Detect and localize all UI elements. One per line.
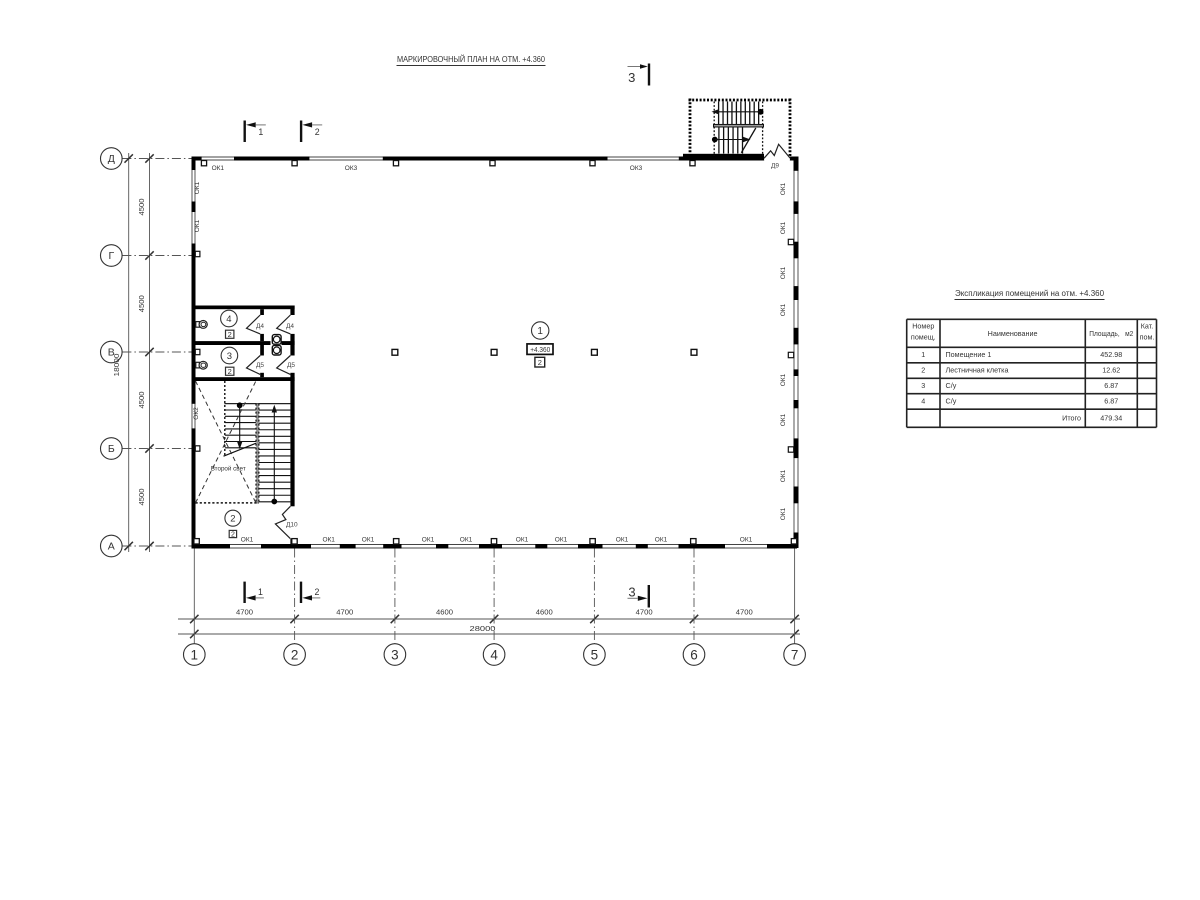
svg-text:ОК1: ОК1 [655, 537, 668, 544]
svg-text:ОК1: ОК1 [780, 303, 787, 316]
svg-text:4700: 4700 [736, 608, 753, 617]
svg-text:Второй свет: Второй свет [211, 464, 246, 472]
svg-text:6: 6 [690, 647, 698, 662]
svg-text:4: 4 [226, 314, 231, 325]
svg-text:ОК1: ОК1 [460, 537, 473, 544]
svg-text:2: 2 [538, 358, 542, 367]
svg-text:помещ.: помещ. [911, 333, 936, 342]
svg-text:ОК1: ОК1 [322, 537, 335, 544]
svg-text:Д: Д [108, 153, 115, 165]
svg-text:ОК1: ОК1 [780, 373, 787, 386]
svg-text:4: 4 [490, 647, 498, 662]
svg-text:452.98: 452.98 [1100, 350, 1122, 359]
svg-text:Д10: Д10 [286, 522, 298, 529]
svg-text:ОК1: ОК1 [780, 221, 787, 234]
svg-text:2: 2 [231, 532, 235, 539]
svg-text:ОК1: ОК1 [194, 181, 201, 194]
svg-text:2: 2 [315, 127, 320, 137]
svg-text:1: 1 [191, 647, 199, 662]
svg-text:Итого: Итого [1062, 414, 1081, 423]
svg-text:ОК1: ОК1 [780, 469, 787, 482]
svg-text:ОК1: ОК1 [241, 537, 254, 544]
svg-text:7: 7 [791, 647, 799, 662]
svg-text:2: 2 [315, 587, 320, 597]
svg-text:4500: 4500 [137, 295, 146, 312]
svg-text:2: 2 [291, 647, 299, 662]
svg-text:ОК1: ОК1 [780, 413, 787, 426]
svg-text:18000: 18000 [112, 354, 121, 377]
svg-text:3: 3 [391, 647, 399, 662]
svg-text:ОК1: ОК1 [212, 165, 225, 172]
svg-text:Д4: Д4 [286, 323, 294, 330]
svg-text:2: 2 [921, 365, 925, 374]
svg-text:1: 1 [537, 326, 543, 337]
svg-text:ОК1: ОК1 [516, 537, 529, 544]
svg-text:ОК3: ОК3 [345, 165, 358, 172]
svg-text:ОК1: ОК1 [194, 219, 201, 232]
svg-text:1: 1 [258, 127, 263, 137]
svg-text:4: 4 [921, 396, 925, 405]
svg-text:ОК1: ОК1 [740, 537, 753, 544]
svg-text:ОК1: ОК1 [616, 537, 629, 544]
svg-text:4700: 4700 [236, 608, 253, 617]
svg-text:ОК1: ОК1 [362, 537, 375, 544]
svg-text:А: А [108, 541, 115, 553]
svg-text:ОК1: ОК1 [780, 266, 787, 279]
svg-text:Лестничная клетка: Лестничная клетка [946, 365, 1009, 374]
svg-text:Г: Г [108, 250, 114, 262]
svg-text:+4.360: +4.360 [530, 347, 550, 354]
svg-text:2: 2 [228, 367, 232, 376]
svg-text:3: 3 [227, 351, 232, 362]
svg-text:Номер: Номер [912, 322, 934, 331]
svg-text:ОК3: ОК3 [630, 165, 643, 172]
svg-text:12.62: 12.62 [1102, 365, 1120, 374]
svg-text:4600: 4600 [536, 608, 553, 617]
svg-text:Кат.: Кат. [1141, 322, 1154, 331]
svg-text:МАРКИРОВОЧНЫЙ ПЛАН НА ОТМ. +4.: МАРКИРОВОЧНЫЙ ПЛАН НА ОТМ. +4.360 [397, 53, 545, 64]
svg-text:С/у: С/у [946, 396, 957, 405]
svg-text:Д5: Д5 [256, 362, 264, 369]
svg-text:Д5: Д5 [287, 362, 295, 369]
svg-text:ОК1: ОК1 [555, 537, 568, 544]
svg-text:Экспликация помещений на отм.: Экспликация помещений на отм. +4.360 [955, 288, 1104, 298]
svg-text:Б: Б [108, 443, 115, 455]
svg-text:4500: 4500 [137, 392, 146, 409]
svg-text:2: 2 [230, 514, 235, 525]
svg-text:Площадь, м2: Площадь, м2 [1089, 329, 1133, 338]
svg-text:С/у: С/у [946, 381, 957, 390]
svg-text:4700: 4700 [636, 608, 653, 617]
svg-text:пом.: пом. [1140, 333, 1155, 342]
svg-text:ОК1: ОК1 [780, 507, 787, 520]
svg-text:3: 3 [628, 585, 635, 600]
svg-text:ОК1: ОК1 [422, 537, 435, 544]
svg-text:1: 1 [258, 587, 263, 597]
svg-text:4700: 4700 [336, 608, 353, 617]
svg-text:6.87: 6.87 [1104, 396, 1118, 405]
svg-text:4500: 4500 [137, 199, 146, 216]
svg-text:1: 1 [921, 350, 925, 359]
svg-text:ОК2: ОК2 [193, 407, 200, 420]
svg-text:2: 2 [228, 330, 232, 339]
svg-text:6.87: 6.87 [1104, 381, 1118, 390]
svg-text:5: 5 [591, 647, 599, 662]
svg-text:3: 3 [921, 381, 925, 390]
svg-text:3: 3 [628, 70, 635, 85]
svg-text:Помещение 1: Помещение 1 [946, 350, 992, 359]
svg-text:Д4: Д4 [256, 323, 264, 330]
svg-text:ОК1: ОК1 [780, 182, 787, 195]
svg-text:4600: 4600 [436, 608, 453, 617]
svg-text:28000: 28000 [470, 624, 496, 633]
svg-text:479.34: 479.34 [1100, 414, 1122, 423]
svg-text:Д9: Д9 [771, 163, 779, 170]
svg-text:4500: 4500 [137, 489, 146, 506]
svg-text:Наименование: Наименование [988, 329, 1038, 338]
